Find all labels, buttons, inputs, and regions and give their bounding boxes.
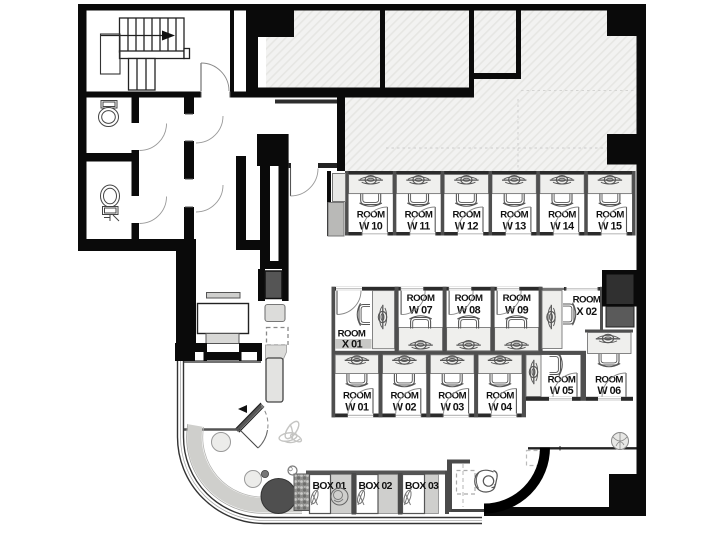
svg-text:ROOM: ROOM xyxy=(486,391,514,402)
svg-text:W 07: W 07 xyxy=(409,304,433,316)
svg-text:X 01: X 01 xyxy=(342,338,363,350)
svg-text:ROOM: ROOM xyxy=(455,293,483,304)
svg-text:ROOM: ROOM xyxy=(452,210,480,221)
svg-text:ROOM: ROOM xyxy=(390,391,418,402)
svg-text:W 06: W 06 xyxy=(597,385,621,397)
svg-text:X 02: X 02 xyxy=(576,306,597,318)
svg-text:ROOM: ROOM xyxy=(438,391,466,402)
svg-text:ROOM: ROOM xyxy=(573,294,601,305)
svg-text:W 09: W 09 xyxy=(505,304,529,316)
svg-text:ROOM: ROOM xyxy=(405,210,433,221)
svg-text:ROOM: ROOM xyxy=(407,293,435,304)
svg-text:ROOM: ROOM xyxy=(596,210,624,221)
svg-text:ROOM: ROOM xyxy=(548,210,576,221)
svg-text:ROOM: ROOM xyxy=(343,391,371,402)
svg-text:ROOM: ROOM xyxy=(500,210,528,221)
svg-text:ROOM: ROOM xyxy=(357,210,385,221)
svg-text:W 08: W 08 xyxy=(457,304,481,316)
svg-text:ROOM: ROOM xyxy=(503,293,531,304)
